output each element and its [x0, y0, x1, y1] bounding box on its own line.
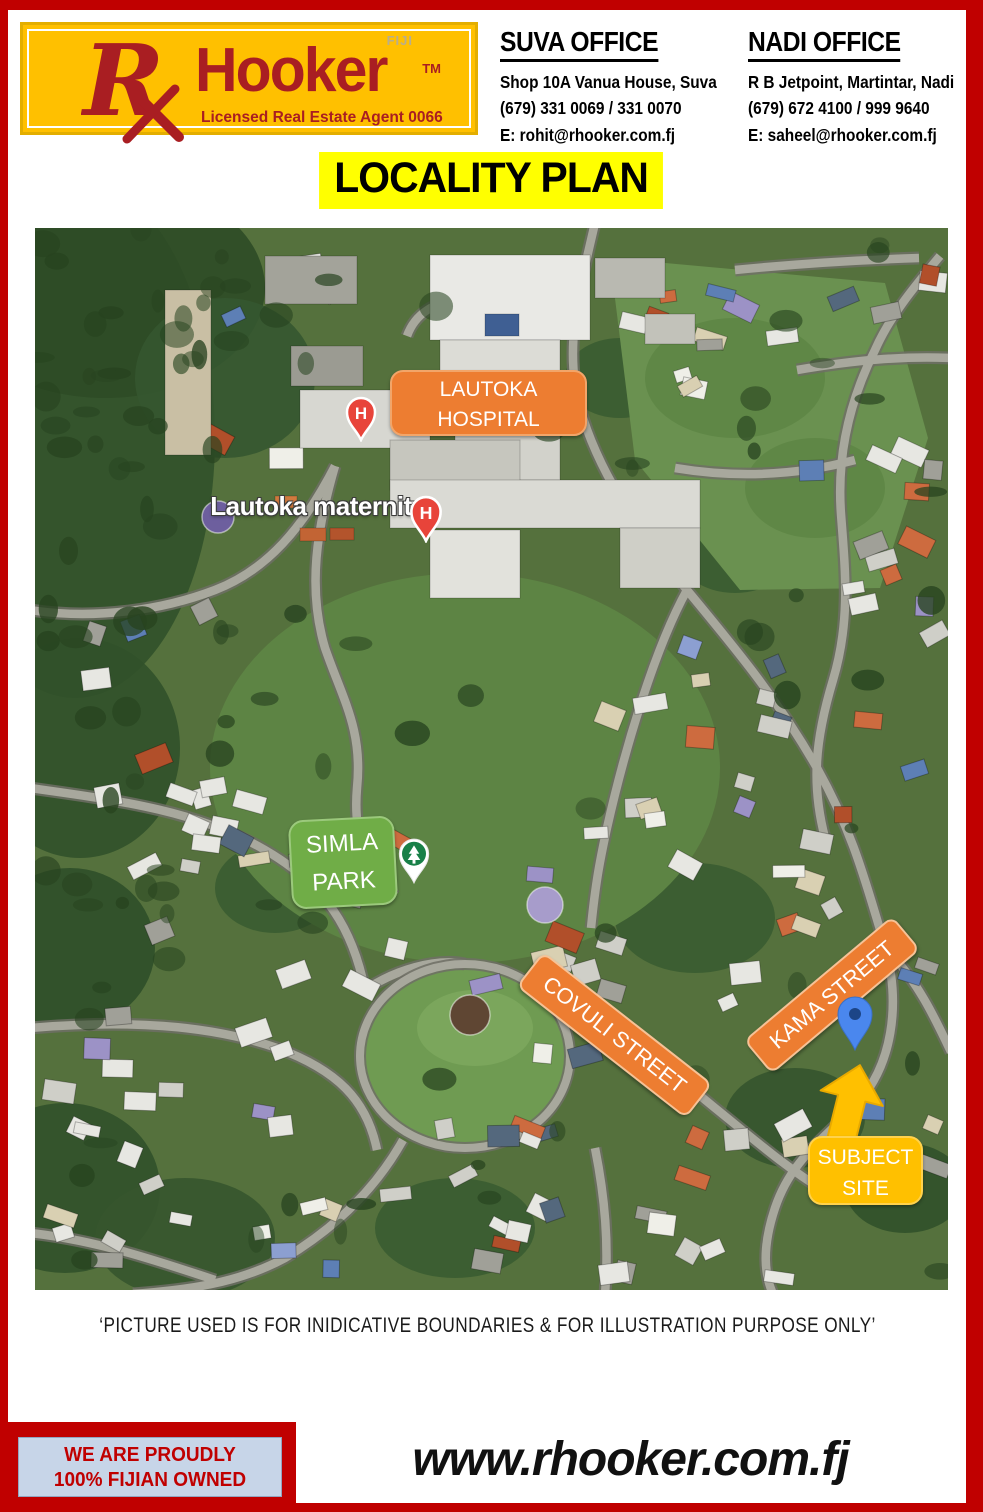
brand-country: FIJI — [387, 33, 413, 48]
company-logo: R Hooker FIJI TM Licensed Real Estate Ag… — [20, 22, 478, 135]
nadi-office-address: R B Jetpoint, Martintar, Nadi — [748, 69, 946, 95]
disclaimer-text: ‘PICTURE USED IS FOR INIDICATIVE BOUNDAR… — [99, 1314, 876, 1338]
site-pin-icon — [833, 994, 877, 1052]
website-url-text: www.rhooker.com.fj — [412, 1433, 848, 1486]
nadi-office-email: E: saheel@rhooker.com.fj — [748, 122, 946, 148]
fijian-owned-line2: 100% FIJIAN OWNED — [26, 1468, 275, 1493]
simla-park-label-line2: PARK — [292, 860, 396, 903]
svg-text:H: H — [420, 503, 433, 523]
fijian-owned-badge: WE ARE PROUDLY 100% FIJIAN OWNED — [18, 1437, 282, 1497]
fijian-owned-line1: WE ARE PROUDLY — [26, 1443, 275, 1468]
suva-office-title: SUVA OFFICE — [500, 26, 658, 62]
page-border-left — [0, 0, 8, 1512]
suva-office-block: SUVA OFFICE Shop 10A Vanua House, Suva (… — [500, 26, 742, 148]
page-border-right — [966, 0, 983, 1512]
locality-map: H LAUTOKA HOSPITAL Lautoka maternity H S… — [35, 228, 948, 1290]
simla-park-label-line1: SIMLA — [290, 822, 394, 865]
subject-site-label: SUBJECT SITE — [808, 1136, 923, 1205]
rx-logo-icon: R — [81, 27, 201, 145]
nadi-office-phone: (679) 672 4100 / 999 9640 — [748, 95, 946, 121]
simla-park-label: SIMLA PARK — [288, 815, 399, 909]
park-marker-icon — [395, 837, 433, 885]
page-title-text: LOCALITY PLAN — [319, 152, 663, 209]
lautoka-hospital-label: LAUTOKA HOSPITAL — [390, 370, 587, 436]
nadi-office-block: NADI OFFICE R B Jetpoint, Martintar, Nad… — [748, 26, 973, 148]
hospital-marker-icon: H — [343, 396, 379, 442]
lautoka-maternity-label: Lautoka maternity — [198, 491, 438, 522]
svg-text:R: R — [81, 27, 164, 139]
trademark-symbol: TM — [422, 61, 441, 76]
nadi-office-title: NADI OFFICE — [748, 26, 901, 62]
maternity-marker-icon: H — [407, 495, 445, 543]
subject-site-label-line2: SITE — [810, 1173, 921, 1204]
license-tagline: Licensed Real Estate Agent 0066 — [201, 109, 443, 127]
svg-text:H: H — [355, 404, 367, 423]
suva-office-address: Shop 10A Vanua House, Suva — [500, 69, 713, 95]
suva-office-email: E: rohit@rhooker.com.fj — [500, 122, 713, 148]
subject-site-label-line1: SUBJECT — [810, 1142, 921, 1173]
disclaimer-note: ‘PICTURE USED IS FOR INIDICATIVE BOUNDAR… — [8, 1314, 966, 1338]
suva-office-phone: (679) 331 0069 / 331 0070 — [500, 95, 713, 121]
fijian-owned-banner: WE ARE PROUDLY 100% FIJIAN OWNED — [0, 1422, 296, 1512]
lautoka-hospital-label-line1: LAUTOKA — [392, 375, 585, 405]
brand-name: Hooker — [195, 35, 387, 106]
page-border-top — [0, 0, 983, 10]
website-url: www.rhooker.com.fj — [296, 1432, 965, 1487]
page-title: LOCALITY PLAN — [0, 152, 983, 209]
lautoka-hospital-label-line2: HOSPITAL — [392, 405, 585, 435]
